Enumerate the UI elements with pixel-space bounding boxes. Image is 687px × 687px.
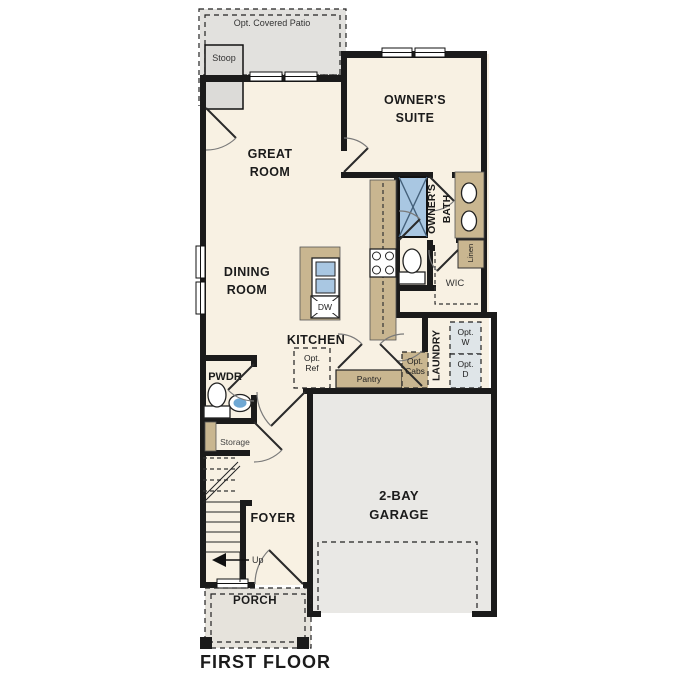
powder-label: PWDR [202,370,248,386]
wall-segment [303,388,497,394]
wall-segment [491,312,497,617]
wall-segment [341,51,347,151]
wall-segment [341,51,487,58]
kitchen-label: KITCHEN [266,331,366,349]
opt-washer-label: Opt. W [450,327,481,347]
vanity-sink [462,183,477,203]
kitchen-sink [312,258,339,296]
laundry-label: LAUNDRY [430,323,445,389]
up-label: Up [252,554,276,567]
wall-segment [200,355,257,361]
dishwasher-label: DW [312,302,338,312]
patio-label: Opt. Covered Patio [202,17,342,30]
wall-segment [200,582,217,588]
stoop-label: Stoop [206,52,242,65]
wall-segment [248,582,255,588]
dining-room-label: DINING ROOM [190,263,304,299]
shower [399,177,427,237]
window [382,48,412,57]
plan-title: FIRST FLOOR [200,652,331,673]
opt-ref-label: Opt. Ref [294,353,330,373]
wall-segment [303,582,310,588]
wall-segment [200,75,206,588]
window [250,72,282,81]
opt-cabs-label: Opt. Cabs [400,356,430,376]
window [217,579,248,588]
garage-label: 2-BAY GARAGE [339,487,459,525]
wall-segment [427,245,435,251]
first-floor-plan: Opt. Covered Patio Stoop GREAT ROOM OWNE… [0,0,687,687]
owners-suite-label: OWNER'S SUITE [355,91,475,127]
great-room-label: GREAT ROOM [210,145,330,181]
pantry-label: Pantry [336,374,402,384]
stove [370,249,396,277]
window [415,48,445,57]
opt-dryer-label: Opt. D [450,359,481,379]
wall-segment [394,312,497,318]
storage-label: Storage [212,437,258,447]
linen-label: Linen [466,238,476,268]
wall-segment [307,611,321,617]
wall-segment [472,611,497,617]
porch-post [297,637,309,649]
owners-bath-label: OWNER'S BATH [425,173,457,245]
wic-label: WIC [430,277,480,291]
powder-sink [229,395,251,412]
foyer-label: FOYER [243,509,303,527]
window [285,72,317,81]
porch-label: PORCH [215,593,295,610]
porch-post [200,637,212,649]
vanity-sink [462,211,477,231]
